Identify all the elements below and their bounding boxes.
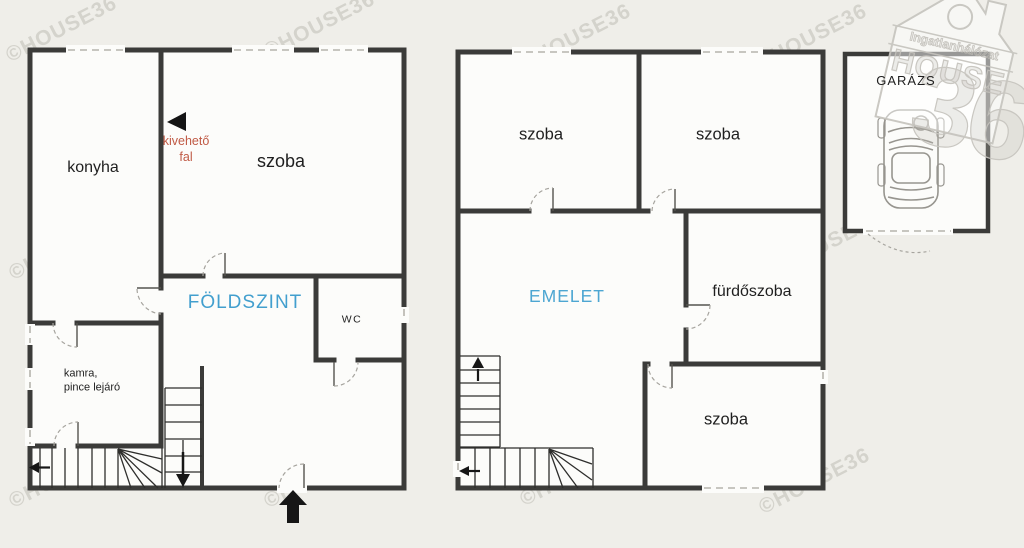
room-label-garage: GARÁZS	[876, 73, 935, 89]
room-label-room-upper-right: szoba	[696, 125, 740, 146]
garage-openings	[863, 226, 953, 253]
removable-wall-note: kivehető fal	[163, 133, 210, 166]
room-label-bathroom: fürdőszoba	[712, 282, 791, 302]
floorplan-drawing	[0, 0, 1024, 548]
room-label-room-ground: szoba	[257, 150, 305, 173]
room-label-room-upper-bottom: szoba	[704, 410, 748, 431]
entrance-arrow	[279, 490, 307, 523]
room-label-room-upper-left: szoba	[519, 125, 563, 146]
floor-title-upper: EMELET	[529, 286, 605, 308]
room-label-wc: WC	[342, 313, 363, 326]
floorplan-image: ©HOUSE36 ©HOUSE36 ©HOUSE36 ©HOUSE36 ©HOU…	[0, 0, 1024, 548]
room-label-kitchen: konyha	[67, 158, 119, 178]
floor-title-ground: FÖLDSZINT	[188, 291, 303, 315]
room-label-pantry: kamra, pince lejáró	[64, 367, 120, 395]
